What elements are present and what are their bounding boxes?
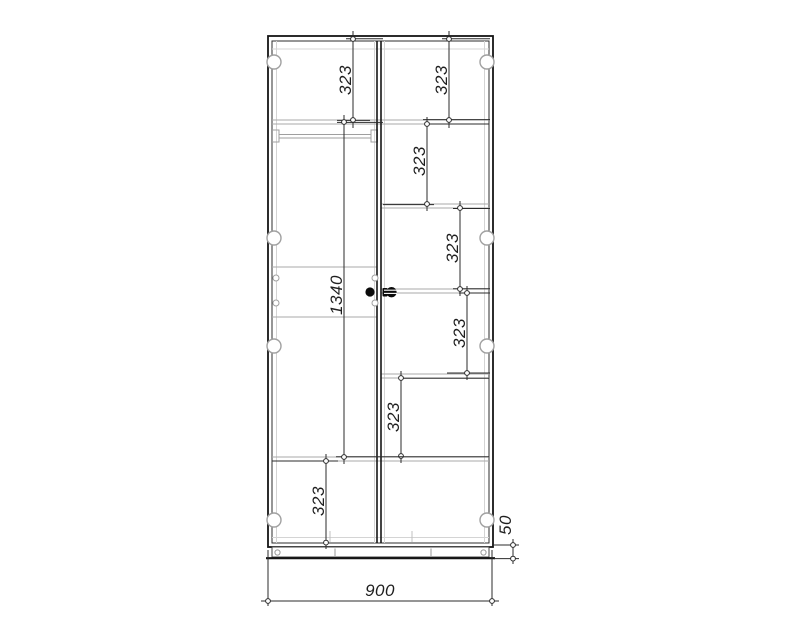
dim-label: 900 xyxy=(365,581,395,600)
hinge-symbol xyxy=(267,339,281,353)
hinge-symbol xyxy=(267,55,281,69)
dim-label: 323 xyxy=(443,233,462,263)
wardrobe-technical-drawing: 323 323 323 323 323 323 323 1340 50 900 xyxy=(0,0,785,642)
hinge-symbol xyxy=(267,231,281,245)
dim-label: 323 xyxy=(384,402,403,432)
cabinet-structure xyxy=(266,36,495,558)
hinge-symbol xyxy=(480,231,494,245)
hinge-symbol xyxy=(267,513,281,527)
dim-label: 323 xyxy=(450,318,469,348)
dim-label: 1340 xyxy=(327,275,346,315)
dim-label: 323 xyxy=(336,65,355,95)
dim-label: 50 xyxy=(496,515,515,535)
right-door-knob xyxy=(383,287,398,297)
shelf-pin-symbol xyxy=(273,300,279,306)
hinge-symbol xyxy=(480,339,494,353)
dim-plinth xyxy=(492,539,519,564)
shelf-pin-symbol xyxy=(372,300,378,306)
hinge-symbol xyxy=(480,55,494,69)
dim-label: 323 xyxy=(309,486,328,516)
dim-label: 323 xyxy=(410,146,429,176)
plinth-panel xyxy=(272,547,489,557)
hinge-symbol xyxy=(480,513,494,527)
shelf-pin-symbol xyxy=(372,275,378,281)
dim-label: 323 xyxy=(432,65,451,95)
shelf-pin-symbol xyxy=(273,275,279,281)
drawing-canvas: 323 323 323 323 323 323 323 1340 50 900 xyxy=(0,0,785,642)
left-door-knob xyxy=(365,287,374,296)
